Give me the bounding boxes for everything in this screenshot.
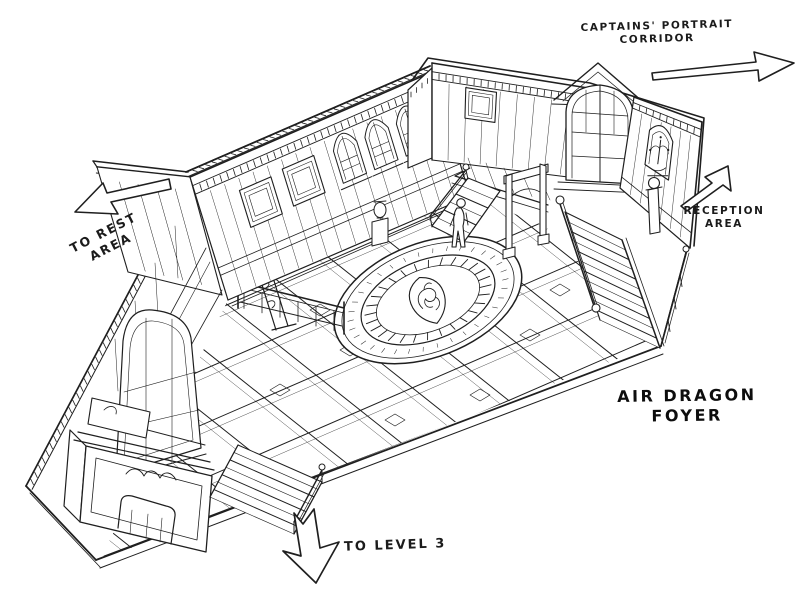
title-line-2: FOYER xyxy=(612,405,762,427)
label-text: RECEPTION xyxy=(683,205,764,217)
captains-corridor-arrow-icon xyxy=(652,52,794,81)
corridor-landing-doors xyxy=(408,63,646,259)
grand-staircase xyxy=(556,196,664,348)
label-text: TO LEVEL 3 xyxy=(344,536,447,555)
title-line-1: AIR DRAGON xyxy=(617,385,757,406)
page-title: AIR DRAGON FOYER xyxy=(612,385,763,427)
label-text: CAPTAINS' PORTRAIT xyxy=(580,18,733,34)
label-captains-portrait-corridor: CAPTAINS' PORTRAIT CORRIDOR xyxy=(572,18,743,49)
label-text: AREA xyxy=(676,218,772,231)
sketch-page: CAPTAINS' PORTRAIT CORRIDOR RECEPTION AR… xyxy=(0,0,800,612)
label-reception-area: RECEPTION AREA xyxy=(676,205,772,231)
foyer-isometric-drawing xyxy=(0,0,800,612)
